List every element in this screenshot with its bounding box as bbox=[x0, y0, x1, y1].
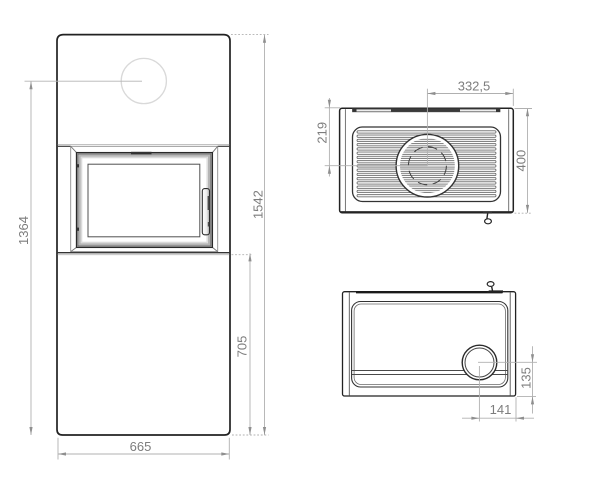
svg-text:400: 400 bbox=[513, 150, 528, 172]
svg-text:1364: 1364 bbox=[16, 216, 31, 245]
svg-text:219: 219 bbox=[314, 122, 329, 144]
svg-text:1542: 1542 bbox=[251, 190, 266, 219]
svg-text:135: 135 bbox=[518, 367, 533, 389]
svg-text:665: 665 bbox=[130, 439, 152, 454]
svg-text:332,5: 332,5 bbox=[458, 79, 491, 94]
svg-text:141: 141 bbox=[490, 402, 512, 417]
svg-text:705: 705 bbox=[235, 336, 250, 358]
